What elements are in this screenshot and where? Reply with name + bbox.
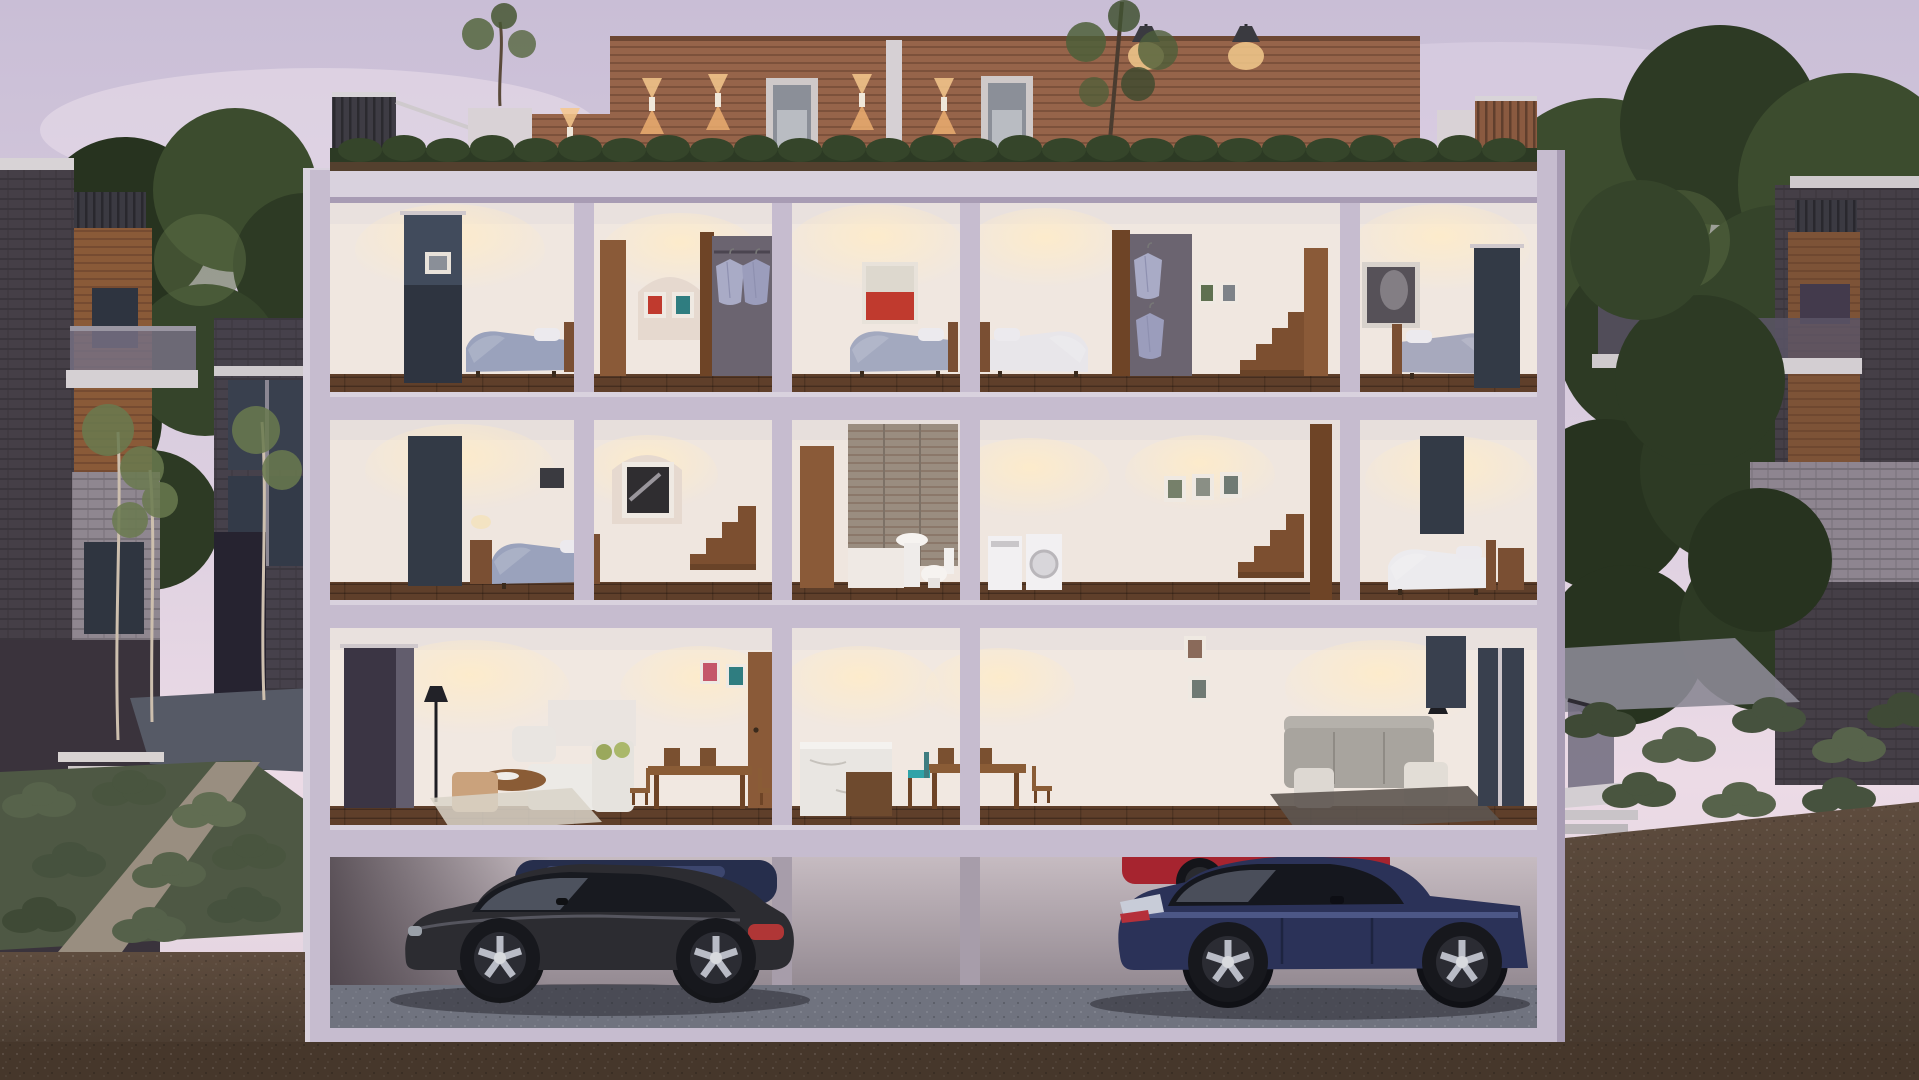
closet-recess (712, 236, 772, 376)
chair-back (664, 748, 680, 768)
sedan-wheel-front (1422, 922, 1502, 1002)
monochrome-print (627, 467, 669, 513)
planter-soil-line (330, 162, 1537, 171)
roof-tree-foliage (462, 18, 494, 50)
dryer-door (1031, 551, 1057, 577)
bath-halfwall (848, 548, 904, 588)
basin-pedestal (904, 543, 920, 587)
penthouse-roof-edge (610, 36, 1420, 41)
slab-top-edge (330, 825, 1537, 830)
timber-column (1310, 424, 1332, 600)
balcony-rail (70, 326, 196, 331)
bedroom-window (1420, 436, 1464, 534)
art-print (703, 663, 717, 681)
door-wood (1304, 248, 1328, 376)
tree-overlap (1688, 488, 1832, 632)
balcony-slab (66, 370, 198, 388)
coupe-wheel-rear (676, 918, 756, 998)
dining-table-top (648, 766, 752, 775)
armchair-white (512, 726, 556, 762)
main-building (303, 0, 1565, 1058)
marble-top (800, 742, 892, 749)
beltline-highlight (1122, 912, 1518, 918)
teal-chair-back (924, 752, 929, 778)
side-mirror (556, 898, 568, 905)
slat-texture (1795, 200, 1857, 236)
curtain (396, 648, 414, 808)
slab-top-edge (330, 392, 1537, 397)
terrace-window (1474, 248, 1520, 388)
tree-foliage (1079, 77, 1109, 107)
terrace-slab (303, 168, 1565, 202)
slat-texture (74, 192, 146, 232)
slab-top-edge (330, 600, 1537, 605)
soil-texture (0, 1042, 1919, 1080)
roof-tree-foliage (491, 3, 517, 29)
wall-shade (1557, 150, 1565, 1058)
step (1564, 824, 1628, 834)
stair-halfwall (548, 700, 636, 746)
chair-back (700, 748, 716, 768)
head-light (408, 926, 422, 936)
table-leg (1014, 773, 1019, 809)
party-wall (960, 202, 980, 825)
window (1426, 636, 1466, 708)
table-leg (740, 775, 745, 809)
photo-trio (1164, 472, 1242, 502)
art-print-teal (676, 296, 690, 314)
garage-pier (960, 857, 980, 987)
art-print (429, 256, 447, 270)
roof-tree-foliage (508, 30, 536, 58)
roof-tree-trunk (500, 22, 502, 106)
glass-balcony (70, 330, 196, 372)
door-mullion (1498, 648, 1502, 806)
art-detail (1380, 270, 1408, 310)
timber-cabinet (846, 772, 892, 816)
closet-panel (1112, 230, 1130, 376)
parapet-trim (0, 158, 74, 172)
tree-overlap (1570, 180, 1710, 320)
painting-red-field (866, 292, 914, 320)
nightstand (470, 540, 492, 584)
art-print (1192, 680, 1206, 698)
slab-underside (303, 197, 1565, 203)
parapet-trim (1790, 176, 1919, 188)
green-pillow (596, 744, 612, 760)
step (58, 752, 164, 762)
party-wall (772, 202, 792, 825)
tree-foliage (1108, 0, 1140, 32)
green-pillow (614, 742, 630, 758)
closet-panel (700, 232, 714, 376)
table-lamp (471, 515, 491, 529)
soil-texture (1565, 802, 1919, 1080)
wall-highlight (303, 170, 310, 1058)
step (1564, 810, 1638, 820)
rendering-canvas (0, 0, 1919, 1080)
art-print-red (648, 296, 662, 314)
tree-highlight (154, 214, 246, 306)
window (84, 542, 144, 634)
side-mirror (1330, 896, 1344, 904)
tree-overlap (1615, 295, 1785, 465)
art-frame-small (540, 468, 564, 488)
tree-foliage (1066, 22, 1106, 62)
window-reflection (404, 215, 462, 285)
sedan-wheel-rear (1188, 922, 1268, 1002)
bathroom-door (800, 446, 834, 588)
art-print (1223, 285, 1235, 301)
window-frame (400, 211, 466, 215)
nightstand (1498, 548, 1524, 590)
window-frame (1470, 244, 1524, 248)
toilet-base (928, 578, 940, 588)
garage (330, 846, 1537, 1028)
cutaway-illustration (0, 0, 1919, 1080)
washer-controls (991, 541, 1019, 547)
chair-leg (908, 778, 912, 808)
art-print (729, 667, 743, 685)
art-print (1201, 285, 1213, 301)
table-leg (932, 773, 937, 809)
art-print (1188, 640, 1202, 658)
tree-foliage (1138, 30, 1178, 70)
rail-cap (1475, 96, 1537, 101)
coupe-wheel-front (460, 918, 540, 998)
door-handle (753, 727, 758, 732)
window-frame (340, 644, 418, 648)
floor-trim (214, 366, 310, 376)
kitchen-island (800, 742, 892, 816)
painting-upper (866, 266, 914, 292)
door-wood (600, 240, 626, 376)
rail-cap (332, 92, 396, 97)
table-leg (654, 775, 659, 809)
tail-light (748, 924, 784, 940)
bedroom-window (408, 436, 462, 586)
tree-foliage (1121, 67, 1155, 101)
